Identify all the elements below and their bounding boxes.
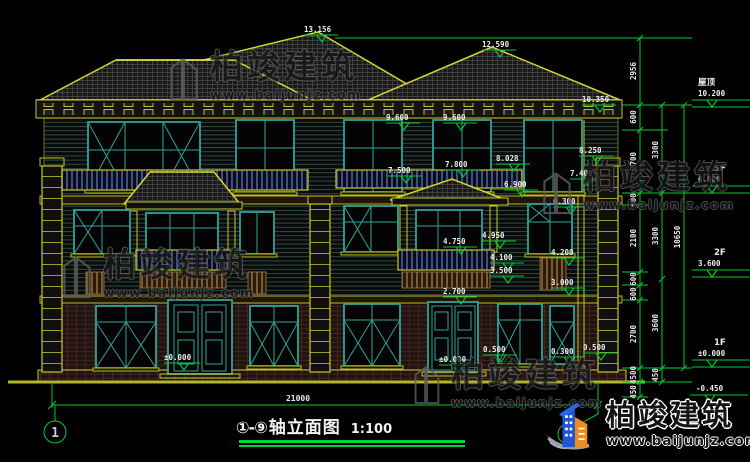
elevation-value: 0.500	[583, 343, 606, 352]
dim-value: 2700	[629, 324, 638, 343]
window-1f-a	[93, 306, 159, 371]
dim-value: 600	[629, 272, 638, 286]
elevation-value: 7.800	[445, 160, 468, 169]
level-value: 10.200	[698, 89, 726, 98]
elevation-value: 4.100	[490, 253, 513, 262]
window-1f-b	[247, 306, 301, 369]
elevation-value: 8.250	[579, 146, 602, 155]
elevation-value: 9.600	[443, 113, 466, 122]
dim-value: 4500	[629, 365, 638, 384]
elevation-value: 12.590	[482, 40, 510, 49]
elevation-value: 3.500	[490, 266, 513, 275]
elevation-value: 13.156	[304, 25, 332, 34]
watermark-url: www.baijunjz.com	[583, 197, 735, 212]
watermark-brand: 柏竣建筑	[583, 160, 735, 193]
elevation-value: 0.500	[483, 345, 506, 354]
elevation-value: 3.000	[551, 278, 574, 287]
eave-cornice	[36, 100, 622, 118]
axis-number-1: 1	[51, 426, 59, 441]
elevation-value: 10.350	[582, 95, 610, 104]
level-label: 屋顶	[698, 77, 716, 88]
cad-viewport: 13.156 12.590 10.350 9.600 9.600 8.250 8…	[0, 0, 750, 462]
dim-value: 3600	[651, 313, 660, 332]
elevation-value: 4.950	[482, 231, 505, 240]
level-label: 2F	[714, 248, 726, 258]
watermark: 柏竣建筑 www.baijunjz.com	[536, 160, 750, 220]
title-underline	[239, 445, 465, 447]
watermark: 柏竣建筑 www.baijunjz.com	[163, 50, 362, 102]
watermark-brand: 柏竣建筑	[210, 50, 362, 83]
entry-door-left	[160, 300, 240, 378]
dim-value: 3300	[651, 140, 660, 159]
drawing-title: ①-⑨ 轴立面图 1:100	[236, 413, 392, 438]
dim-value: 450	[651, 368, 660, 382]
elevation-value: ±0.000	[164, 353, 192, 362]
dim-value: 2956	[629, 61, 638, 80]
brand-logo-text: 柏竣建筑	[606, 401, 750, 430]
watermark-url: www.baijunjz.com	[103, 285, 255, 300]
watermark: 柏竣建筑 www.baijunjz.com	[56, 248, 255, 300]
elevation-value: 4.750	[443, 237, 466, 246]
brand-logo-url: www.baijunjz.com	[606, 433, 750, 449]
watermark-logo-icon	[536, 160, 578, 220]
dim-value: 2100	[629, 228, 638, 247]
elevation-value: 6.900	[504, 180, 527, 189]
window-2f-c	[341, 206, 401, 255]
dim-value: 3300	[651, 226, 660, 245]
level-label: 1F	[714, 338, 726, 348]
railing-3f-right	[336, 170, 522, 188]
watermark-logo-icon	[56, 248, 98, 300]
watermark-logo-icon	[408, 358, 446, 406]
scale-label: 1:100	[351, 422, 392, 437]
elevation-value: 7.500	[388, 166, 411, 175]
brand-logo: 柏竣建筑 www.baijunjz.com	[543, 391, 750, 459]
watermark-url: www.baijunjz.com	[210, 87, 362, 102]
title-text: 轴立面图	[269, 413, 341, 438]
watermark-brand: 柏竣建筑	[451, 358, 603, 391]
dim-value: 600	[629, 287, 638, 301]
axis-range: ①-⑨	[236, 418, 267, 437]
elevation-value: 9.600	[386, 113, 409, 122]
brand-logo-icon	[543, 391, 605, 459]
elevation-value: 8.028	[496, 154, 519, 163]
watermark-logo-icon	[163, 50, 205, 102]
party-pilaster	[308, 196, 332, 372]
watermark-brand: 柏竣建筑	[103, 248, 255, 281]
dim-value: 10650	[673, 225, 682, 248]
balcony-right	[398, 250, 494, 288]
dim-value: 600	[629, 110, 638, 124]
level-value: 3.600	[698, 259, 721, 268]
elevation-value: 2.700	[443, 287, 466, 296]
overall-width-dim: 21000	[286, 394, 310, 403]
level-value: ±0.000	[698, 349, 726, 358]
title-underline	[239, 440, 465, 443]
elevation-value: 4.200	[551, 248, 574, 257]
window-1f-c	[341, 304, 403, 369]
